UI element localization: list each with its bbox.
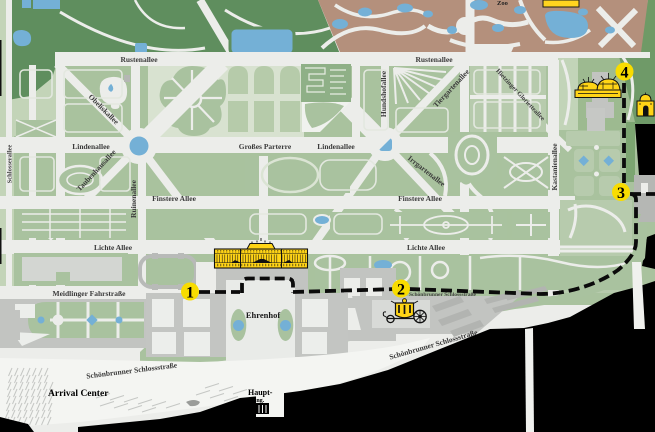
svg-text:Lindenallee: Lindenallee <box>72 142 110 151</box>
svg-text:Schlosserallee: Schlosserallee <box>7 145 14 184</box>
svg-text:3: 3 <box>617 185 625 202</box>
svg-text:Zoo: Zoo <box>497 0 508 7</box>
svg-text:Hundshofallee: Hundshofallee <box>379 70 388 117</box>
svg-text:Finstere Allee: Finstere Allee <box>152 194 196 203</box>
svg-text:eing.: eing. <box>252 398 265 404</box>
svg-text:4: 4 <box>621 65 629 82</box>
svg-text:Rustenallee: Rustenallee <box>415 55 453 64</box>
svg-text:Großes Parterre: Großes Parterre <box>239 142 292 151</box>
svg-text:Ruinenallee: Ruinenallee <box>129 179 138 218</box>
svg-text:Arrival Center: Arrival Center <box>48 389 109 399</box>
svg-text:Lindenallee: Lindenallee <box>317 142 355 151</box>
svg-text:Lichte Allee: Lichte Allee <box>407 243 446 252</box>
svg-text:1: 1 <box>186 285 194 302</box>
svg-text:Lichte Allee: Lichte Allee <box>94 243 133 252</box>
svg-text:Haupt-: Haupt- <box>248 388 273 397</box>
svg-text:Ehrenhof: Ehrenhof <box>246 310 280 320</box>
svg-text:2: 2 <box>397 282 405 299</box>
svg-text:Kastanienallee: Kastanienallee <box>550 143 559 191</box>
svg-text:Finstere Allee: Finstere Allee <box>398 194 442 203</box>
svg-text:Rustenallee: Rustenallee <box>120 55 158 64</box>
svg-text:Meidlinger Fahrstraße: Meidlinger Fahrstraße <box>53 289 127 298</box>
